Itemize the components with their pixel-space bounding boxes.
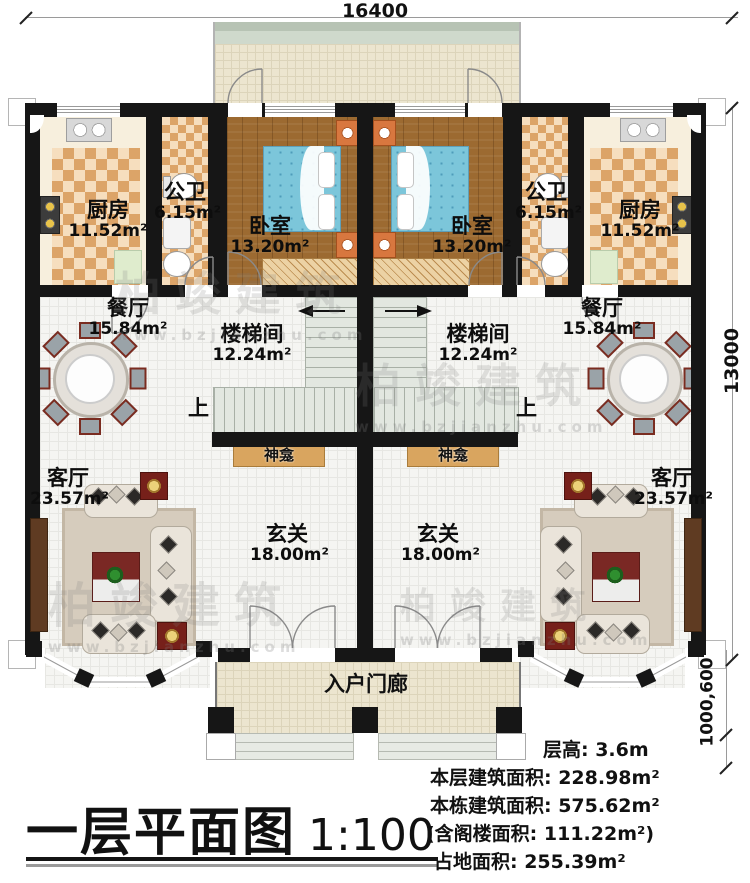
room-area: 18.00m²	[250, 546, 324, 566]
dimension-right-value: 13000	[721, 301, 743, 421]
counter-left	[114, 250, 142, 284]
room-area: 13.20m²	[424, 238, 520, 258]
tv-cabinet-left	[30, 518, 48, 632]
room-label-stairwell-left: 楼梯间 12.24m²	[202, 322, 302, 366]
nightstand	[336, 120, 359, 146]
room-label-foyer-right: 玄关 18.00m²	[401, 522, 475, 566]
room-label-stairwell-right: 楼梯间 12.24m²	[428, 322, 528, 366]
room-label-bedroom-right: 卧室 13.20m²	[424, 214, 520, 258]
porch-column	[496, 707, 522, 733]
terrace-floor	[215, 44, 519, 103]
porch-column	[208, 707, 234, 733]
chair	[130, 368, 147, 390]
wall-interior	[262, 285, 468, 297]
room-label-living-left: 客厅 23.57m²	[30, 466, 106, 510]
porch-label: 入户门廊	[215, 668, 517, 698]
dimension-right-lower-value: 1000,600	[698, 645, 718, 760]
stair-up-label-right: 上	[516, 392, 537, 422]
room-name: 楼梯间	[428, 322, 528, 346]
porch-steps-left	[234, 733, 354, 760]
porch-column	[352, 707, 378, 733]
tv-cabinet-right	[684, 518, 702, 632]
plant	[606, 566, 624, 584]
room-name: 卧室	[424, 214, 520, 238]
shrine-right: 神龛	[407, 444, 499, 467]
room-area: 6.15m²	[515, 204, 577, 224]
side-table	[140, 472, 168, 500]
column-base	[496, 733, 526, 760]
bay-floor-right	[520, 648, 685, 688]
info-attic-area: (含阁楼面积: 111.22m²)	[426, 819, 654, 846]
room-name: 公卫	[515, 180, 577, 204]
info-land-area: 占地面积: 255.39m²	[434, 847, 626, 874]
side-table	[157, 622, 187, 650]
dining-table-top-right	[619, 354, 669, 404]
stair-upper-flight-right	[373, 297, 427, 389]
room-label-living-right: 客厅 23.57m²	[634, 466, 710, 510]
room-area: 15.84m²	[556, 320, 648, 340]
dimension-line-right-lower	[726, 650, 727, 768]
info-floor-area: 本层建筑面积: 228.98m²	[430, 763, 660, 790]
wall-bottom	[480, 648, 512, 662]
chair	[588, 368, 605, 390]
dimension-top-value: 16400	[325, 0, 425, 22]
room-name: 客厅	[634, 466, 710, 490]
pillow	[318, 152, 335, 188]
basin-right	[541, 251, 569, 277]
stair-upper-flight-left	[305, 297, 359, 389]
room-name: 餐厅	[556, 296, 648, 320]
title-text: 一层平面图	[26, 803, 296, 863]
title-underline	[26, 857, 438, 861]
room-name: 客厅	[30, 466, 106, 490]
wardrobe-left	[262, 258, 359, 286]
room-name: 公卫	[154, 180, 216, 204]
basin-left	[163, 251, 191, 277]
room-area: 11.52m²	[588, 222, 692, 242]
counter-right	[590, 250, 618, 284]
room-name: 玄关	[250, 522, 324, 546]
stair-lower-flight-right	[373, 387, 519, 434]
nightstand	[373, 120, 396, 146]
room-label-bath-left: 公卫 6.15m²	[154, 180, 216, 224]
info-floor-height: 层高: 3.6m	[543, 735, 649, 762]
room-name: 餐厅	[82, 296, 174, 320]
stair-up-label-left: 上	[188, 392, 209, 422]
side-table	[564, 472, 592, 500]
chair	[79, 418, 101, 435]
stair-lower-flight-left	[213, 387, 359, 434]
kitchen-sink-left	[66, 118, 112, 142]
room-area: 23.57m²	[30, 490, 106, 510]
info-building-area: 本栋建筑面积: 575.62m²	[430, 791, 660, 818]
column-base	[206, 733, 236, 760]
room-area: 12.24m²	[202, 346, 302, 366]
room-label-bath-right: 公卫 6.15m²	[515, 180, 577, 224]
shrine-left: 神龛	[233, 444, 325, 467]
room-area: 13.20m²	[222, 238, 318, 258]
window-bedroom-left	[265, 103, 335, 117]
wall-bottom	[218, 648, 250, 662]
wall-stair-right	[373, 432, 518, 447]
window-kitchen-left	[57, 103, 120, 117]
terrace-edge-strip	[215, 22, 519, 31]
room-area: 15.84m²	[82, 320, 174, 340]
porch-steps-right	[378, 733, 498, 760]
room-area: 23.57m²	[634, 490, 710, 510]
room-label-foyer-left: 玄关 18.00m²	[250, 522, 324, 566]
bay-floor-left	[45, 648, 210, 688]
pillow	[397, 152, 414, 188]
kitchen-sink-right	[620, 118, 666, 142]
room-area: 18.00m²	[401, 546, 475, 566]
room-label-kitchen-left: 厨房 11.52m²	[56, 198, 160, 242]
entry-door-opening-left	[250, 648, 335, 662]
room-label-kitchen-right: 厨房 11.52m²	[588, 198, 692, 242]
plant	[106, 566, 124, 584]
rear-terrace	[213, 22, 521, 103]
entry-door-opening-right	[395, 648, 480, 662]
room-name: 厨房	[56, 198, 160, 222]
wall-interior	[502, 285, 517, 297]
room-label-dining-right: 餐厅 15.84m²	[556, 296, 648, 340]
room-name: 厨房	[588, 198, 692, 222]
nightstand	[336, 232, 359, 258]
room-name: 楼梯间	[202, 322, 302, 346]
wall-center	[357, 103, 373, 662]
pillow	[397, 194, 414, 230]
title-scale: 1:100	[308, 810, 435, 861]
wall-interior	[213, 285, 228, 297]
room-label-bedroom-left: 卧室 13.20m²	[222, 214, 318, 258]
door-opening-terrace-left	[228, 103, 262, 117]
room-area: 6.15m²	[154, 204, 216, 224]
pillow	[318, 194, 335, 230]
room-label-dining-left: 餐厅 15.84m²	[82, 296, 174, 340]
drawing-title: 一层平面图1:100	[26, 790, 435, 865]
floor-plan-canvas: 16400 13000 1000,600 神龛 神龛	[0, 0, 750, 883]
wardrobe-right	[373, 258, 470, 286]
title-underline-shadow	[26, 864, 438, 867]
wall-bottom	[335, 648, 395, 662]
chair	[633, 418, 655, 435]
window-kitchen-right	[610, 103, 673, 117]
side-table	[545, 622, 575, 650]
wall-stair-left	[212, 432, 357, 447]
terrace-edge-strip2	[215, 31, 519, 44]
room-name: 卧室	[222, 214, 318, 238]
room-area: 11.52m²	[56, 222, 160, 242]
window-bedroom-right	[395, 103, 465, 117]
room-name: 玄关	[401, 522, 475, 546]
room-area: 12.24m²	[428, 346, 528, 366]
nightstand	[373, 232, 396, 258]
dining-table-top-left	[65, 354, 115, 404]
door-opening-terrace-right	[468, 103, 502, 117]
